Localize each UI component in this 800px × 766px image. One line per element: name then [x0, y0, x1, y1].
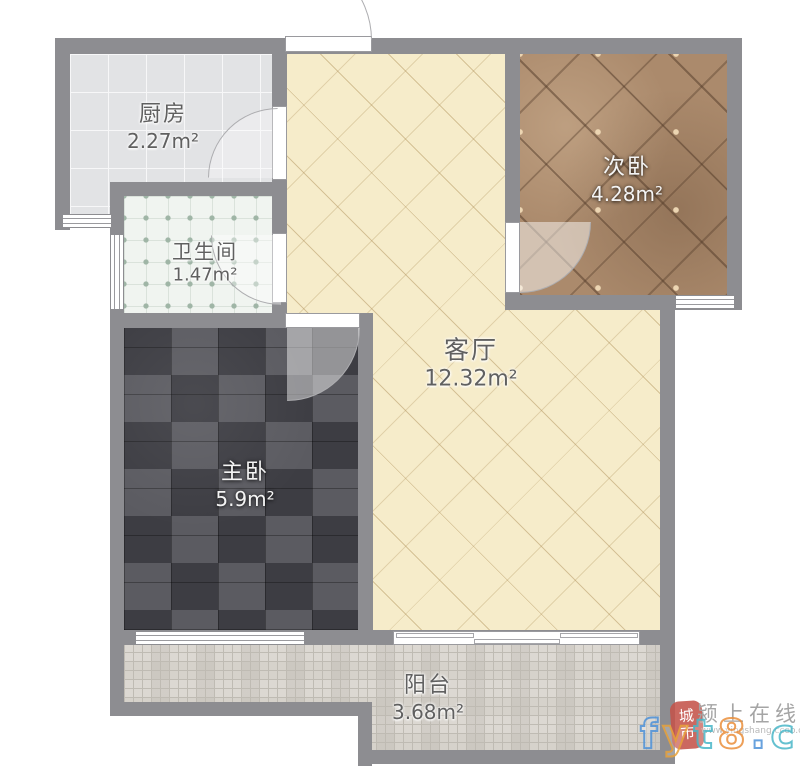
wall-balcony-bottom-right — [358, 750, 675, 764]
second-bedroom-window — [675, 295, 735, 309]
sliding-panel-right — [560, 633, 638, 638]
wall-balcony-bottom-left — [110, 702, 372, 716]
room-label-second-bedroom: 次卧 4.28m² — [591, 154, 663, 207]
kitchen-window — [62, 214, 112, 228]
balcony-sliding-door — [393, 631, 640, 645]
master-bedroom-area: 5.9m² — [215, 486, 274, 511]
bathroom-name: 卫生间 — [172, 239, 238, 264]
kitchen-area: 2.27m² — [127, 128, 199, 153]
second-bedroom-door-opening — [505, 222, 520, 293]
second-bedroom-name: 次卧 — [591, 154, 663, 182]
balcony-area: 3.68m² — [392, 699, 464, 724]
living-room-name: 客厅 — [424, 335, 517, 366]
bathroom-window — [110, 234, 124, 310]
wall-right-second — [727, 38, 742, 310]
room-label-balcony: 阳台 3.68m² — [392, 672, 464, 725]
outside-area — [0, 716, 358, 766]
master-bedroom-name: 主卧 — [215, 459, 274, 487]
entrance-door-arc — [285, 0, 372, 40]
wall-kitchen-left — [55, 38, 70, 230]
floorplan: 厨房 2.27m² 卫生间 1.47m² 主卧 5.9m² 客厅 12.32m²… — [0, 0, 800, 766]
wall-top — [55, 38, 742, 54]
balcony-name: 阳台 — [392, 672, 464, 700]
bathroom-area: 1.47m² — [172, 264, 238, 287]
sliding-panel-left — [396, 633, 474, 638]
master-bedroom-window — [135, 631, 305, 645]
room-label-bathroom: 卫生间 1.47m² — [172, 239, 238, 287]
watermark-big-text: fyt8.cn — [640, 712, 800, 758]
wall-right-living — [660, 300, 675, 762]
living-room-area: 12.32m² — [424, 366, 517, 394]
kitchen-name: 厨房 — [127, 101, 199, 129]
sliding-panel-middle — [474, 639, 560, 644]
room-label-kitchen: 厨房 2.27m² — [127, 101, 199, 154]
master-bedroom-door-opening — [285, 313, 360, 328]
wall-master-living-divider — [358, 313, 373, 645]
room-label-master-bedroom: 主卧 5.9m² — [215, 459, 274, 512]
wall-bathroom-top — [110, 182, 287, 196]
room-label-living-room: 客厅 12.32m² — [424, 335, 517, 394]
second-bedroom-area: 4.28m² — [591, 181, 663, 206]
